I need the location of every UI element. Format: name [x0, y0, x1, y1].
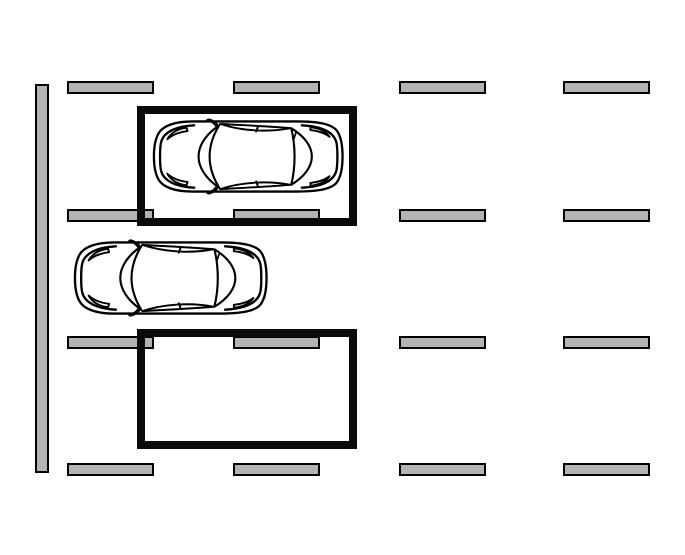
lane-marking-dash — [233, 463, 320, 476]
lane-marking-dash — [233, 81, 320, 94]
lane-marking-dash — [563, 336, 650, 349]
lane-marking-dash — [399, 209, 486, 222]
lane-marking-dash — [399, 463, 486, 476]
parked-car-icon — [152, 118, 344, 195]
lane-marking-dash — [67, 81, 154, 94]
lane-marking-dash — [67, 463, 154, 476]
lane-marking-dash — [563, 209, 650, 222]
lane-marking-dash — [563, 81, 650, 94]
curb-bar — [35, 84, 49, 473]
parking-lot-diagram — [0, 0, 685, 555]
lane-marking-dash — [399, 336, 486, 349]
lane-marking-dash — [399, 81, 486, 94]
parking-space-empty — [137, 329, 357, 449]
aisle-car-icon — [73, 239, 268, 317]
lane-marking-dash — [563, 463, 650, 476]
